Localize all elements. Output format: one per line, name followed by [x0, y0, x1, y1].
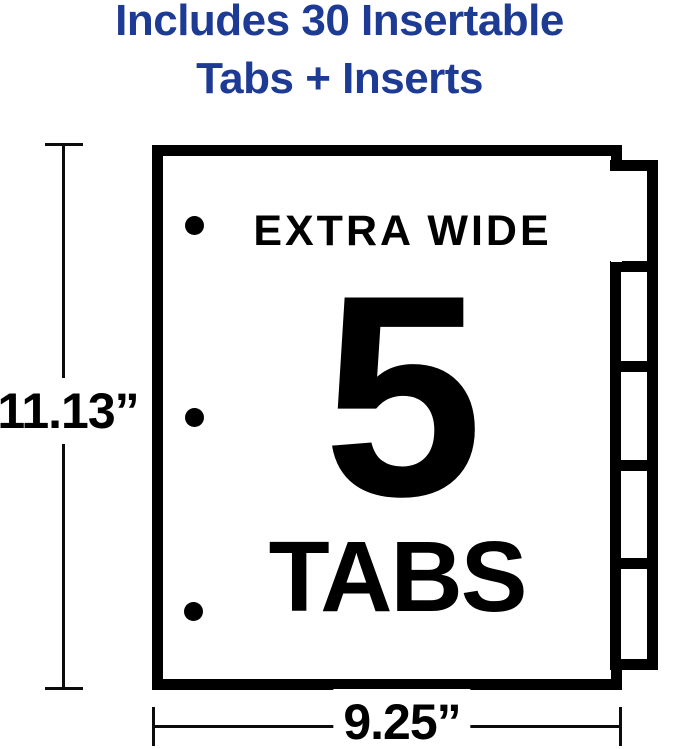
index-tab-4 [610, 460, 658, 573]
index-tab-3 [610, 361, 658, 472]
headline: Includes 30 Insertable Tabs + Inserts [0, 0, 679, 108]
height-dimension-tick-bottom [45, 687, 83, 690]
headline-line-2: Tabs + Inserts [0, 50, 679, 108]
index-tab-2 [610, 261, 658, 373]
punch-hole-2 [185, 408, 204, 427]
tab-count-number: 5 [278, 281, 528, 509]
tabs-label: TABS [197, 527, 597, 627]
height-dimension-label: 11.13” [0, 378, 141, 444]
width-dimension-tick-right [619, 707, 622, 746]
width-dimension-label: 9.25” [333, 689, 470, 749]
headline-line-1: Includes 30 Insertable [0, 0, 679, 50]
height-dimension-tick-top [45, 143, 83, 146]
index-tab-5 [610, 558, 658, 670]
width-dimension-tick-left [152, 707, 155, 746]
product-diagram: Includes 30 Insertable Tabs + Inserts EX… [0, 0, 679, 749]
